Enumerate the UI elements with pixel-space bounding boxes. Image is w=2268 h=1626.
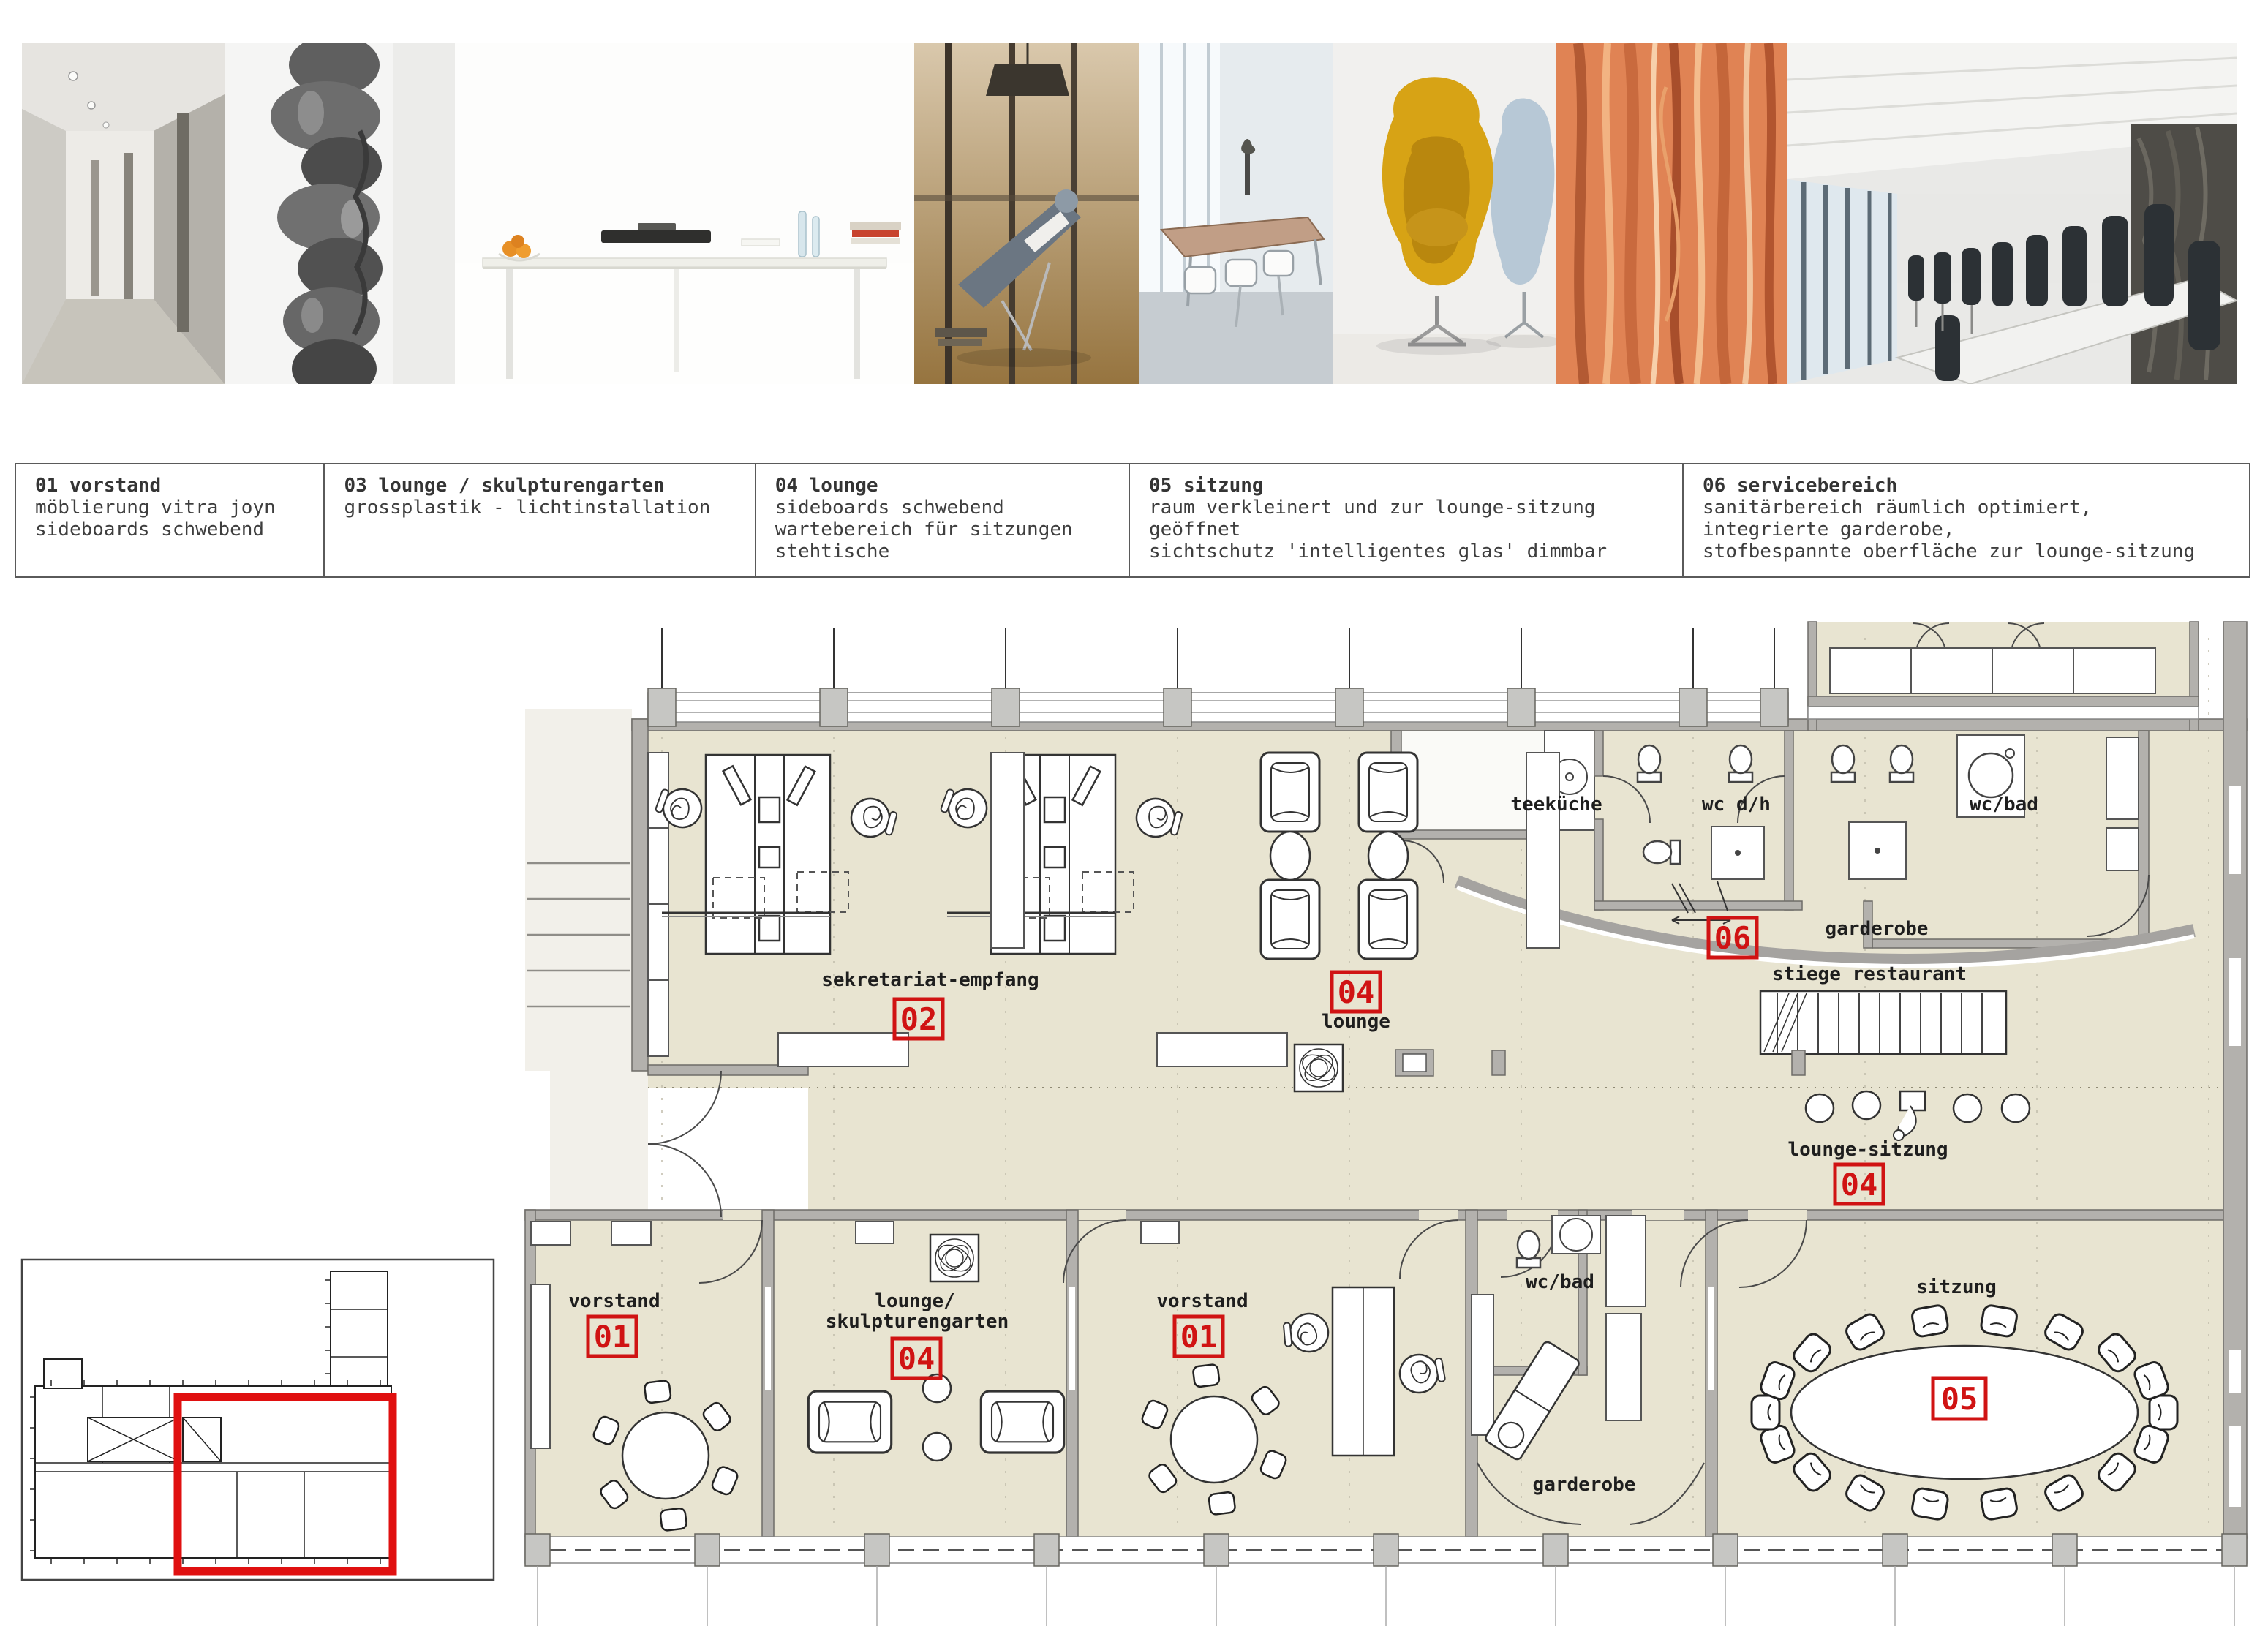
room-label-lounge-sitzung: lounge-sitzung bbox=[1787, 1139, 1948, 1161]
window-pillar bbox=[1204, 1534, 1229, 1566]
window-pillar bbox=[1374, 1534, 1398, 1566]
window-pillar bbox=[1713, 1534, 1738, 1566]
svg-text:04: 04 bbox=[898, 1341, 935, 1377]
conference-chair bbox=[1980, 1304, 2018, 1337]
room-label-sitzung: sitzung bbox=[1916, 1276, 1997, 1298]
annex-cabinets bbox=[1830, 648, 2155, 693]
floor-plan: sekretariat-empfang lounge teeküche wc d… bbox=[0, 0, 2268, 1626]
conference-chair bbox=[1911, 1304, 1949, 1337]
window-pillar bbox=[1335, 688, 1363, 726]
overview-map bbox=[22, 1260, 494, 1580]
conference-chair bbox=[2150, 1396, 2177, 1429]
room-label-lounge-sk1: lounge/ bbox=[875, 1290, 955, 1312]
marker-06: 06 bbox=[1708, 918, 1757, 957]
conference-chair bbox=[1752, 1396, 1779, 1429]
marker-04-lounge: 04 bbox=[1332, 972, 1380, 1012]
sculpture-symbol bbox=[1295, 1045, 1343, 1091]
room-label-lounge-sk2: skulpturengarten bbox=[826, 1311, 1009, 1333]
window-pillar bbox=[1883, 1534, 1907, 1566]
window-pillar bbox=[1164, 688, 1191, 726]
marker-04-lounge-sitzung: 04 bbox=[1835, 1164, 1883, 1204]
conference-chair bbox=[1980, 1487, 2018, 1520]
window-pillar bbox=[1679, 688, 1707, 726]
svg-text:04: 04 bbox=[1841, 1167, 1878, 1202]
conference-chair bbox=[1911, 1487, 1949, 1520]
room-label-sekretariat: sekretariat-empfang bbox=[821, 969, 1039, 991]
top-window-band bbox=[648, 628, 1788, 726]
window-pillar bbox=[2052, 1534, 2077, 1566]
room-label-vorstand-left: vorstand bbox=[568, 1290, 660, 1312]
sculpture-symbol-2 bbox=[930, 1235, 979, 1281]
window-pillar bbox=[695, 1534, 720, 1566]
dining-chair bbox=[1193, 1364, 1220, 1388]
svg-text:01: 01 bbox=[594, 1319, 631, 1355]
marker-04-skulpturengarten: 04 bbox=[892, 1339, 941, 1378]
round-table-left bbox=[622, 1412, 709, 1499]
marker-01-right: 01 bbox=[1175, 1317, 1223, 1356]
window-pillar bbox=[2222, 1534, 2247, 1566]
room-label-vorstand-right: vorstand bbox=[1156, 1290, 1248, 1312]
room-label-stiege: stiege restaurant bbox=[1772, 963, 1967, 985]
window-pillar bbox=[864, 1534, 889, 1566]
window-pillar bbox=[992, 688, 1020, 726]
svg-text:01: 01 bbox=[1180, 1319, 1218, 1355]
room-label-lounge: lounge bbox=[1322, 1011, 1390, 1033]
window-pillar bbox=[525, 1534, 550, 1566]
dining-chair bbox=[644, 1380, 671, 1404]
svg-text:06: 06 bbox=[1714, 920, 1752, 956]
bottom-window-band bbox=[525, 1534, 2247, 1626]
room-label-garderobe-bottom: garderobe bbox=[1533, 1474, 1636, 1496]
marker-01-left: 01 bbox=[588, 1317, 636, 1356]
window-pillar bbox=[1760, 688, 1788, 726]
marker-02: 02 bbox=[894, 999, 943, 1039]
svg-text:05: 05 bbox=[1941, 1381, 1978, 1417]
marker-05: 05 bbox=[1933, 1378, 1986, 1419]
presentation-board: 01 vorstand möblierung vitra joyn sidebo… bbox=[0, 0, 2268, 1626]
window-pillar bbox=[1543, 1534, 1568, 1566]
window-pillar bbox=[1507, 688, 1535, 726]
window-pillar bbox=[648, 688, 676, 726]
room-label-wc-bad-bottom: wc/bad bbox=[1526, 1271, 1594, 1293]
round-table-right bbox=[1171, 1396, 1257, 1483]
dining-chair bbox=[1208, 1491, 1235, 1515]
entry-lobby-area bbox=[550, 1071, 648, 1210]
room-label-wc-dh: wc d/h bbox=[1702, 794, 1771, 816]
svg-text:02: 02 bbox=[900, 1001, 938, 1037]
svg-text:04: 04 bbox=[1338, 974, 1375, 1010]
window-pillar bbox=[1034, 1534, 1059, 1566]
dining-chair bbox=[660, 1508, 687, 1531]
room-label-garderobe-top: garderobe bbox=[1826, 918, 1929, 940]
room-label-wc-bad-top: wc/bad bbox=[1970, 794, 2038, 816]
room-label-teekueche: teeküche bbox=[1510, 794, 1602, 816]
exterior-stair-area bbox=[525, 709, 632, 1071]
window-pillar bbox=[820, 688, 848, 726]
